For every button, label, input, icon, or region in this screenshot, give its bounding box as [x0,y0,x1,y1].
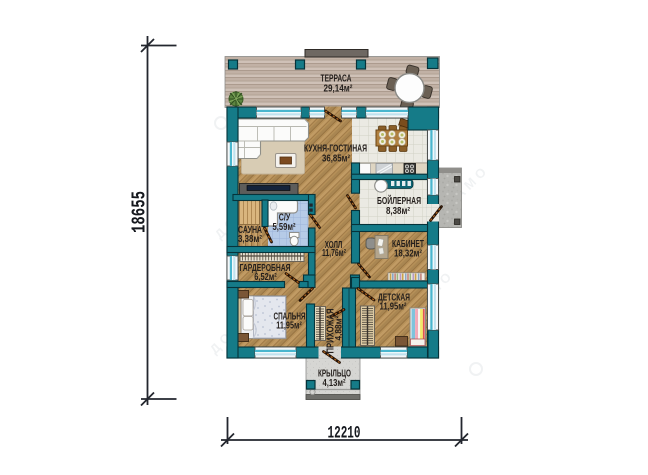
svg-text:11,76м²: 11,76м² [322,248,347,259]
svg-text:4,13м²: 4,13м² [323,378,347,389]
svg-text:18,32м²: 18,32м² [394,249,423,260]
svg-text:29,14м²: 29,14м² [324,83,354,94]
svg-text:36,85м²: 36,85м² [322,153,350,164]
svg-text:11,95м²: 11,95м² [276,321,302,332]
svg-text:12210: 12210 [328,424,361,444]
svg-text:8,38м²: 8,38м² [386,206,411,217]
svg-text:3,38м²: 3,38м² [238,234,263,245]
svg-text:5,59м²: 5,59м² [273,222,297,233]
svg-text:4,88м²: 4,88м² [334,316,345,341]
svg-text:11,95м²: 11,95м² [380,302,408,313]
svg-text:6,52м²: 6,52м² [254,272,277,283]
svg-text:18655: 18655 [129,191,151,233]
